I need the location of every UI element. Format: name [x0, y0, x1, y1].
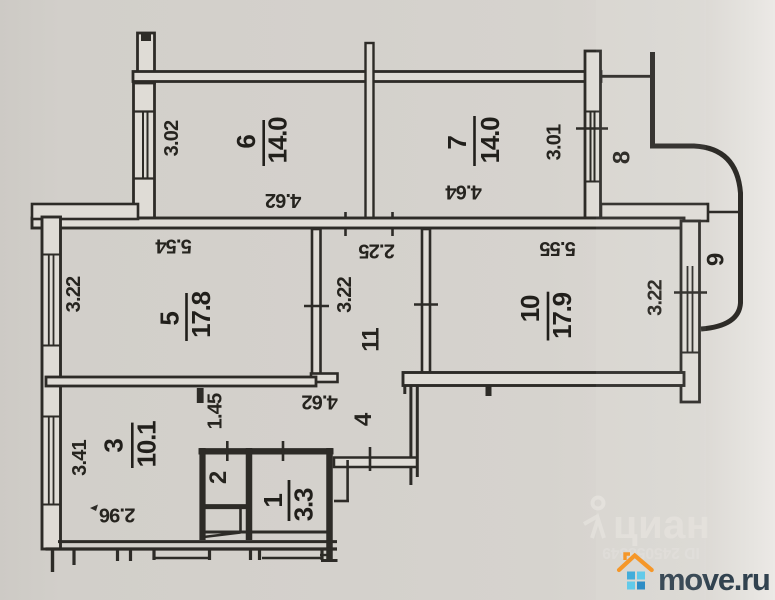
svg-text:4.62: 4.62 [301, 391, 337, 413]
svg-text:3.41: 3.41 [69, 439, 91, 475]
svg-text:3.22: 3.22 [63, 276, 85, 312]
svg-text:10.1: 10.1 [132, 421, 162, 468]
svg-text:2.96: 2.96 [99, 504, 135, 526]
svg-text:5.54: 5.54 [154, 235, 191, 257]
svg-text:2: 2 [205, 471, 232, 484]
svg-text:17.8: 17.8 [186, 291, 216, 338]
svg-text:3.22: 3.22 [334, 276, 356, 312]
svg-text:5.55: 5.55 [539, 237, 575, 259]
svg-text:1: 1 [258, 494, 288, 508]
svg-text:4.62: 4.62 [265, 189, 301, 211]
svg-text:7: 7 [442, 136, 472, 150]
svg-text:4: 4 [350, 412, 377, 426]
svg-text:10: 10 [515, 295, 545, 322]
svg-text:1.45: 1.45 [205, 393, 227, 429]
svg-text:3.3: 3.3 [289, 488, 319, 521]
svg-text:6: 6 [231, 135, 261, 149]
svg-text:17.9: 17.9 [547, 292, 577, 339]
svg-text:3.01: 3.01 [544, 124, 566, 160]
svg-text:14.0: 14.0 [263, 117, 293, 164]
svg-text:11: 11 [358, 328, 385, 352]
svg-text:9: 9 [703, 253, 730, 266]
svg-text:3: 3 [99, 439, 129, 453]
svg-text:5: 5 [155, 312, 185, 326]
svg-text:2.25: 2.25 [358, 240, 394, 262]
svg-text:3.02: 3.02 [161, 120, 183, 156]
svg-text:4.64: 4.64 [444, 181, 481, 203]
svg-text:14.0: 14.0 [475, 117, 505, 164]
